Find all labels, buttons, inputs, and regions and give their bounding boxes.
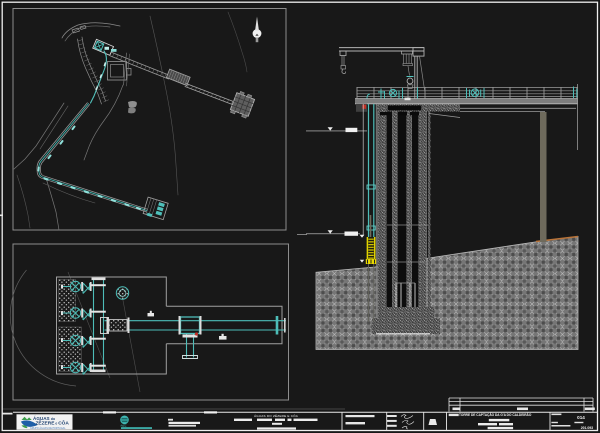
svg-text:014: 014 bbox=[577, 415, 585, 420]
svg-text:ÁGUAS DO ZÊZERE E CÔA: ÁGUAS DO ZÊZERE E CÔA bbox=[254, 413, 299, 418]
svg-text:GRUPO ÁGUAS DE PORTUGAL: GRUPO ÁGUAS DE PORTUGAL bbox=[30, 427, 66, 430]
svg-text:TORRE DE CAPTAÇÃO DA G'A DO CA: TORRE DE CAPTAÇÃO DA G'A DO CALDEIRÃO bbox=[459, 412, 532, 417]
svg-text:201.093: 201.093 bbox=[581, 426, 593, 430]
svg-text:AdZC: AdZC bbox=[121, 425, 127, 428]
